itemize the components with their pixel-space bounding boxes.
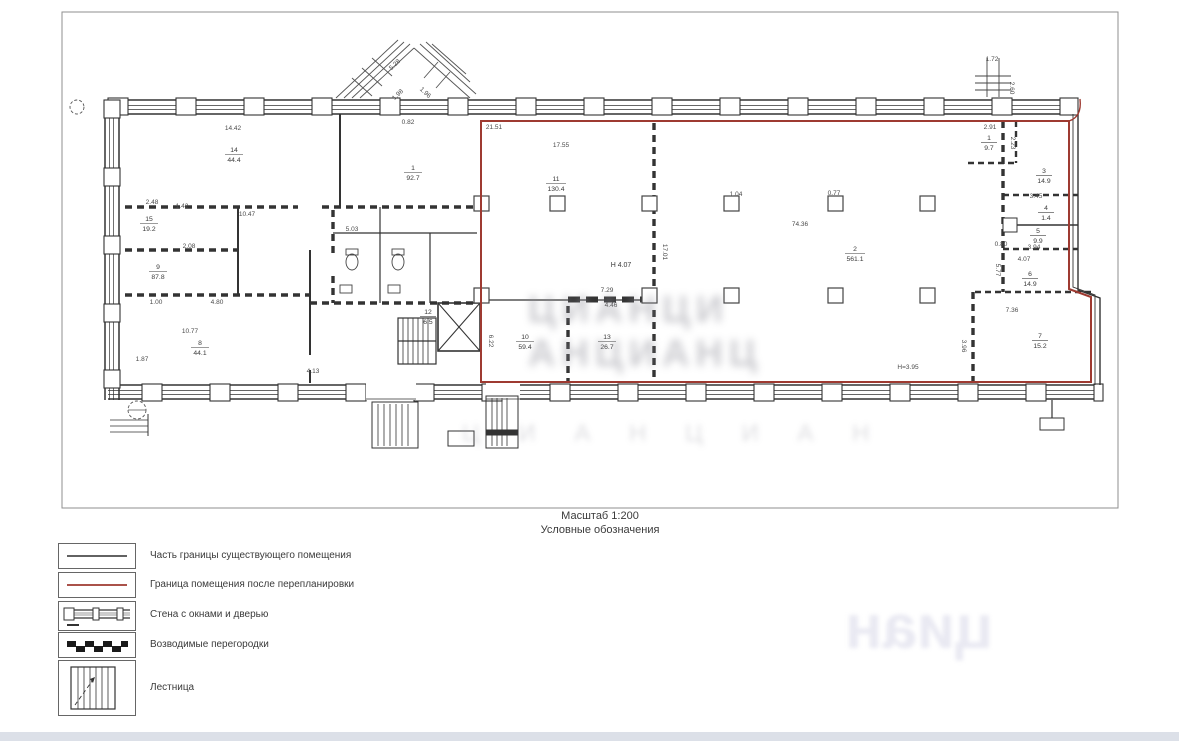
svg-text:1: 1 [987,135,991,142]
svg-text:14.42: 14.42 [225,125,242,132]
svg-text:0.82: 0.82 [402,119,415,126]
svg-text:74.36: 74.36 [792,221,809,228]
floor-plan-sheet: 14.42 5.28 1.98 1.96 0.82 21.51 17.55 1.… [0,0,1179,741]
svg-text:5: 5 [1036,228,1040,235]
site-watermark-legend: циан [845,592,993,663]
svg-text:15.2: 15.2 [1033,343,1046,350]
site-watermark-row: Ц И А Н Ц И А Н [462,420,885,448]
svg-text:1.42: 1.42 [176,203,189,210]
svg-text:92.7: 92.7 [406,175,419,182]
room-label: 844.1 [191,340,209,357]
svg-text:4.07: 4.07 [1018,256,1031,263]
svg-text:19.2: 19.2 [142,226,155,233]
svg-text:H 4.07: H 4.07 [611,262,632,269]
svg-text:3.45: 3.45 [1030,193,1043,200]
entrance-canopy-hatch [336,40,476,98]
svg-text:1: 1 [411,165,415,172]
svg-text:1.96: 1.96 [418,86,432,100]
svg-text:2.60: 2.60 [1008,82,1015,95]
svg-text:2.23: 2.23 [1009,137,1016,150]
svg-text:0.80: 0.80 [995,241,1008,248]
wall-with-windows-symbol [58,601,136,631]
svg-text:1.72: 1.72 [986,56,999,63]
room-label: 314.9 [1036,168,1052,185]
svg-text:44.1: 44.1 [193,350,206,357]
new-partitions-symbol [58,632,136,658]
legend-item-label: Возводимые перегородки [150,639,269,650]
room-label: 19.7 [981,135,997,152]
svg-text:14.9: 14.9 [1037,178,1050,185]
svg-text:44.4: 44.4 [227,157,240,164]
room-label: 614.9 [1022,271,1038,288]
legend-item-label: Часть границы существующего помещения [150,550,351,561]
room-label: 41.4 [1038,205,1054,222]
svg-text:561.1: 561.1 [846,256,863,263]
existing-boundary-symbol [58,543,136,569]
svg-text:6: 6 [1028,271,1032,278]
grid-marker-icon [70,100,84,114]
legend-item-label: Граница помещения после перепланировки [150,579,354,590]
legend-title: Условные обозначения [440,524,760,536]
room-label: 987.8 [149,264,167,281]
svg-text:17.01: 17.01 [661,244,668,261]
svg-text:6.22: 6.22 [487,335,494,348]
svg-text:1.87: 1.87 [136,356,149,363]
svg-text:7: 7 [1038,333,1042,340]
svg-text:12: 12 [424,309,432,316]
svg-text:11: 11 [552,176,559,183]
svg-text:4: 4 [1044,205,1048,212]
room-label: 11130.4 [546,176,566,193]
svg-text:2.48: 2.48 [146,199,159,206]
room-label: 192.7 [404,165,422,182]
svg-text:14: 14 [230,147,238,154]
new-boundary-symbol [58,572,136,598]
site-watermark: ЦИАНЦИ АНЦИАНЦ [528,288,763,376]
svg-text:10.47: 10.47 [239,211,256,218]
svg-text:10.77: 10.77 [182,328,199,335]
columns [474,196,935,303]
room-label: 715.2 [1032,333,1048,350]
elevator-shaft [438,303,480,351]
svg-text:Н=3.95: Н=3.95 [897,364,919,371]
room-label: 2561.1 [845,246,865,263]
stairs-symbol [58,660,136,716]
roof-shaft [975,58,1011,97]
svg-text:1.00: 1.00 [150,299,163,306]
svg-text:9.7: 9.7 [984,145,994,152]
svg-text:14.9: 14.9 [1023,281,1036,288]
svg-text:5.28: 5.28 [388,58,402,72]
svg-text:9.9: 9.9 [1033,238,1043,245]
svg-text:15: 15 [145,216,153,223]
svg-text:17.55: 17.55 [553,142,570,149]
svg-text:87.8: 87.8 [151,274,164,281]
svg-text:5.77: 5.77 [994,264,1001,277]
svg-text:5.03: 5.03 [346,226,359,233]
svg-text:1.4: 1.4 [1041,215,1051,222]
bottom-strip [0,732,1179,741]
room-label: 1519.2 [140,216,158,233]
legend-item-label: Лестница [150,682,194,693]
svg-text:0.77: 0.77 [828,190,841,197]
svg-text:2.91: 2.91 [984,124,997,131]
svg-text:8: 8 [198,340,202,347]
svg-text:130.4: 130.4 [547,186,564,193]
svg-text:3: 3 [1042,168,1046,175]
svg-text:4.80: 4.80 [211,299,224,306]
room-label: 1444.4 [225,147,243,164]
svg-text:1.04: 1.04 [730,191,743,198]
svg-text:2: 2 [853,246,857,253]
svg-text:7.36: 7.36 [1006,307,1019,314]
svg-text:4.13: 4.13 [307,368,320,375]
room-label: 59.9 [1030,228,1046,245]
scale-label: Масштаб 1:200 [440,510,760,522]
svg-text:2.08: 2.08 [183,243,196,250]
svg-text:6.5: 6.5 [423,319,433,326]
svg-text:9: 9 [156,264,160,271]
legend-item-label: Стена с окнами и дверью [150,609,268,620]
svg-text:21.51: 21.51 [486,124,503,131]
wc-fixtures [340,249,404,293]
svg-text:3.96: 3.96 [960,340,967,353]
svg-text:3.94: 3.94 [1028,244,1041,251]
